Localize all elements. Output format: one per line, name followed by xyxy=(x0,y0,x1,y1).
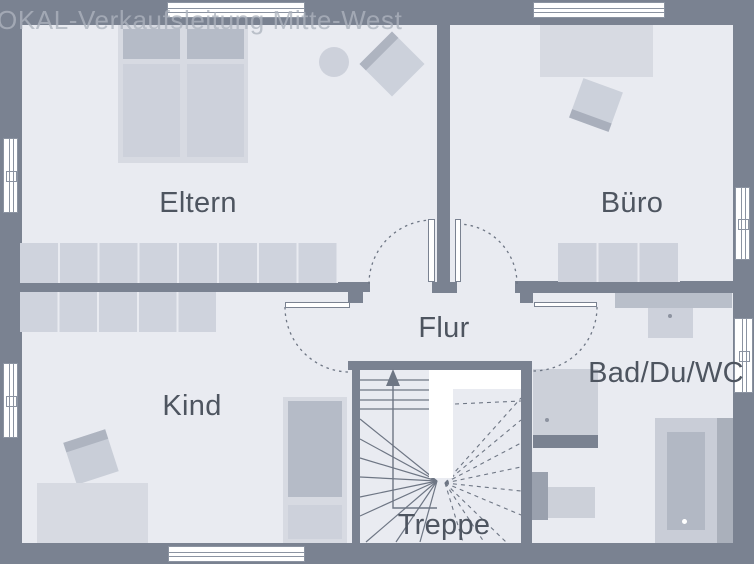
wall-center-foot xyxy=(432,282,457,293)
bathtub-ledge xyxy=(717,418,733,543)
wall-shower-bottom xyxy=(533,435,598,448)
wall-exterior-bottom xyxy=(0,543,754,564)
wall-stub-bad-door xyxy=(520,293,533,303)
wall-stair-bad xyxy=(521,361,532,543)
window-top-buero xyxy=(533,2,665,18)
wall-exterior-right xyxy=(733,0,754,564)
door-leaf-kind xyxy=(285,302,350,308)
floor-plan: Eltern Büro Kind Flur Bad/Du/WC Treppe O… xyxy=(0,0,754,564)
washbasin-faucet-icon xyxy=(668,314,672,318)
desk-buero xyxy=(540,25,653,77)
bed-eltern-duvet-right xyxy=(187,64,244,157)
door-leaf-bad xyxy=(534,302,597,307)
bathtub-drain-icon xyxy=(682,519,687,524)
toilet-bowl xyxy=(548,487,595,518)
shower-drain-icon xyxy=(545,418,549,422)
room-label-bad: Bad/Du/WC xyxy=(588,357,744,390)
sideboard-buero xyxy=(558,243,680,282)
wall-stair-top xyxy=(348,361,529,370)
bed-eltern-duvet-left xyxy=(123,64,180,157)
toilet-tank xyxy=(532,472,548,520)
room-label-buero: Büro xyxy=(601,187,663,220)
window-left-eltern xyxy=(3,138,18,213)
bed-kind-pillow xyxy=(288,505,342,539)
window-left-kind xyxy=(3,363,18,438)
room-label-flur: Flur xyxy=(418,312,469,345)
door-leaf-eltern xyxy=(428,219,435,282)
stool-eltern xyxy=(319,47,349,77)
wall-eltern-buero xyxy=(437,25,450,283)
wall-exterior-left xyxy=(0,0,22,564)
wall-stub-kind-door xyxy=(348,292,363,303)
room-label-treppe: Treppe xyxy=(398,509,491,542)
wall-buero-bad xyxy=(515,281,733,293)
wardrobe-kind xyxy=(20,292,218,332)
window-bottom-kind xyxy=(168,546,305,562)
room-label-kind: Kind xyxy=(162,390,221,423)
door-leaf-buero xyxy=(455,219,461,282)
room-label-eltern: Eltern xyxy=(159,187,237,220)
vanity-counter xyxy=(615,293,732,308)
watermark-text: OKAL-Verkaufsleitung Mitte-West xyxy=(0,5,402,36)
washbasin xyxy=(648,308,693,338)
desk-kind xyxy=(37,483,148,543)
wall-eltern-flur xyxy=(22,282,370,292)
bathtub-inner xyxy=(667,432,705,530)
window-right-buero xyxy=(735,187,750,260)
wall-stair-left xyxy=(352,368,360,543)
bed-kind-mattress xyxy=(288,401,342,497)
wardrobe-eltern xyxy=(20,243,338,283)
